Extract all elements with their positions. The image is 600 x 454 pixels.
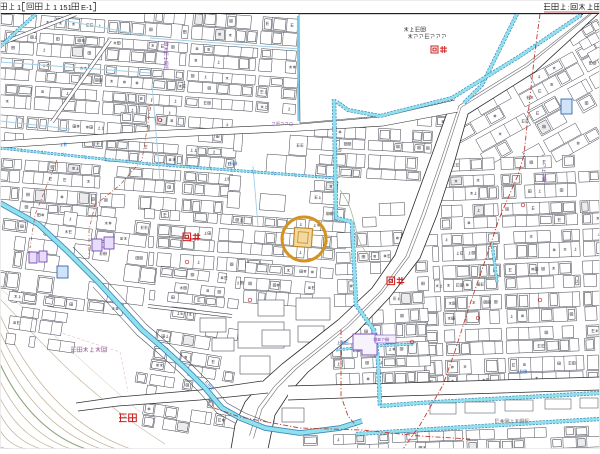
svg-text::: : (568, 5, 570, 12)
svg-text:1 151: 1 151 (53, 3, 72, 12)
svg-text:E-1: E-1 (81, 3, 93, 12)
svg-text:1: 1 (17, 3, 21, 12)
